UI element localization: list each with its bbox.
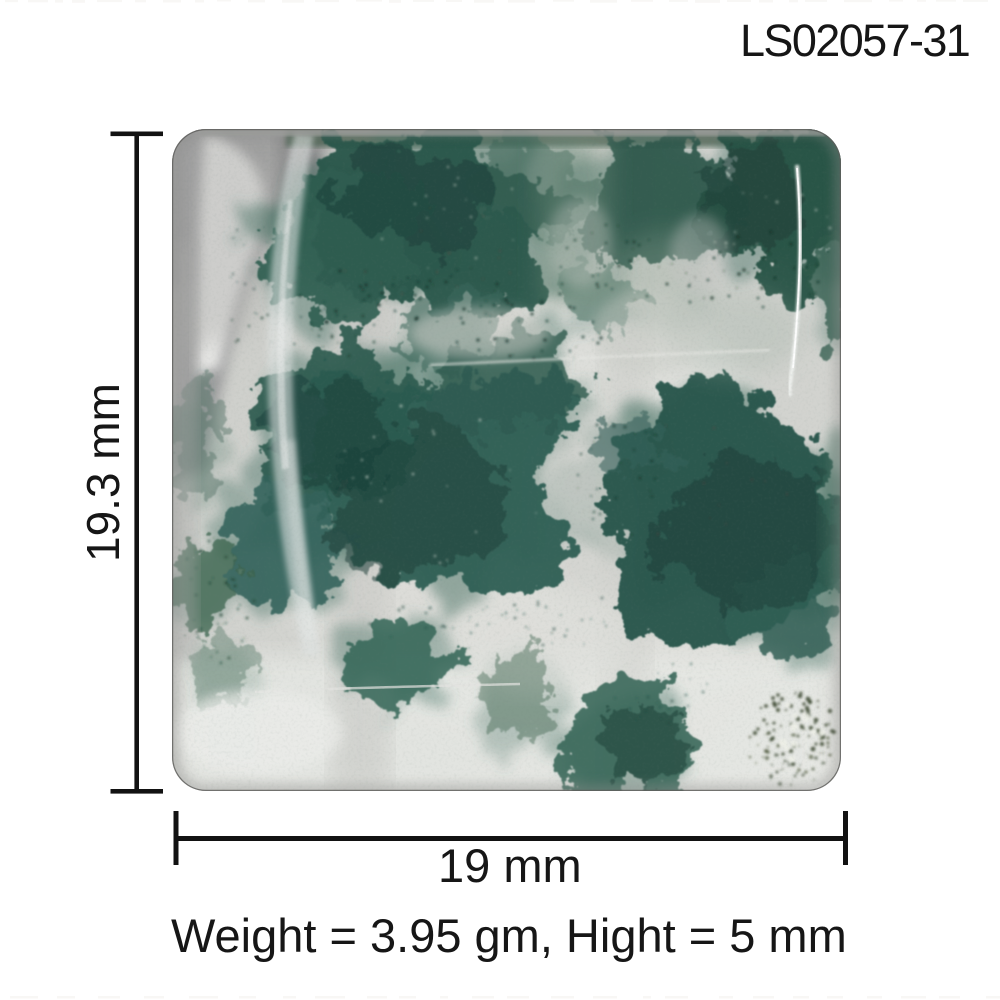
svg-text:Weight = 3.95 gm, Hight = 5 mm: Weight = 3.95 gm, Hight = 5 mm — [171, 909, 847, 962]
svg-text:19.3 mm: 19.3 mm — [77, 383, 129, 562]
svg-text:19 mm: 19 mm — [438, 839, 582, 892]
svg-text:LS02057-31: LS02057-31 — [740, 15, 969, 66]
